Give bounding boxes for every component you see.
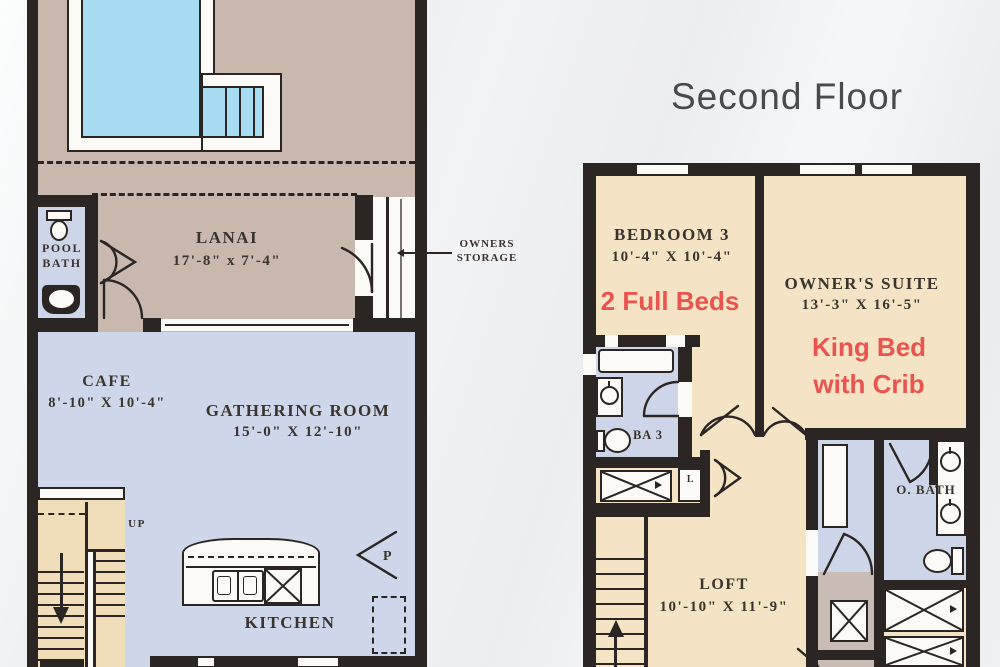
- sink-icon: [600, 386, 619, 405]
- stair-tread: [596, 663, 644, 665]
- owners-suite-door-arc: [761, 400, 809, 438]
- stair-tread: [96, 593, 125, 595]
- toilet-icon: [50, 220, 68, 241]
- closet-marker-icon: [655, 481, 662, 489]
- ba3-door-arc: [640, 378, 682, 420]
- sink-tick: [608, 381, 610, 388]
- page-title: Second Floor: [671, 76, 903, 118]
- closet-door-gap: [605, 335, 618, 347]
- wic-door-opening: [806, 530, 818, 576]
- room-label-cafe: CAFE: [82, 372, 132, 392]
- closet-doors: [822, 444, 848, 528]
- linen-label: L: [687, 474, 695, 487]
- stair-tread: [96, 582, 125, 584]
- pool-step-line: [225, 88, 227, 136]
- floor-plan-page: POOL BATH LANAI 17'-8" x 7'-4" OWNERS ST…: [0, 0, 1000, 667]
- sink-basin: [217, 576, 231, 595]
- stair-tread: [38, 637, 84, 639]
- room-label-gathering-room: GATHERING ROOM: [206, 400, 391, 421]
- sliding-door-line: [165, 324, 349, 326]
- tub-icon: [598, 349, 674, 373]
- storage-shelf-line: [400, 199, 402, 328]
- room-label-bedroom3: BEDROOM 3: [614, 224, 730, 245]
- wall-lanai-bottom-stub: [143, 318, 161, 332]
- counter-appliance: [198, 658, 214, 666]
- room-dims-owners-suite: 13'-3" X 16'-5": [802, 296, 923, 315]
- refrigerator-icon: [372, 596, 406, 654]
- toilet-icon: [923, 549, 952, 573]
- window-icon: [862, 163, 912, 176]
- wall-bedroom3-divider: [755, 176, 764, 437]
- closet-marker-icon: [950, 647, 957, 655]
- wall-lanai-bottom-right: [353, 318, 415, 332]
- stair-tread: [596, 648, 644, 650]
- room-label-lanai: LANAI: [196, 227, 258, 248]
- callout-arrow-icon: [397, 249, 404, 257]
- stair-stringer: [93, 551, 96, 667]
- pool-bath-line1: POOL: [42, 241, 82, 256]
- sink-tick: [949, 499, 951, 506]
- bedroom3-feature-label: 2 Full Beds: [601, 286, 740, 317]
- room-label-owners-suite: OWNER'S SUITE: [784, 273, 939, 294]
- pool-step-line: [253, 88, 255, 136]
- wall-hall-top: [805, 428, 966, 440]
- sink-divider: [237, 572, 239, 600]
- window-icon: [583, 352, 596, 377]
- wall-first-right: [415, 0, 427, 667]
- stair-up-arrow-icon: [608, 620, 624, 637]
- stair-tread: [96, 615, 125, 617]
- room-label-pool-bath: POOL BATH: [42, 241, 82, 271]
- callout-owners-storage: OWNERS STORAGE: [457, 238, 518, 266]
- laundry-bottom-wall: [818, 650, 876, 660]
- stair-tread: [96, 604, 125, 606]
- sink-tick: [949, 447, 951, 454]
- stair-down-arrow-icon: [53, 607, 69, 624]
- pool-step-line: [239, 88, 241, 136]
- wall-lanai-bottom-left: [38, 318, 98, 332]
- washer-icon: [830, 600, 868, 642]
- closet-marker-icon: [950, 605, 957, 613]
- stair-tread: [596, 573, 644, 575]
- stair-up-arrow-shaft: [614, 636, 617, 667]
- dishwasher-icon: [264, 568, 302, 604]
- window-icon: [637, 163, 688, 176]
- stair-landing-line: [85, 549, 125, 552]
- pool: [81, 0, 201, 138]
- wall-second-left: [583, 163, 596, 667]
- shower-door-arc: [886, 440, 936, 486]
- pool-bath-line2: BATH: [42, 256, 82, 271]
- closet-door-gap: [666, 335, 685, 347]
- stair-bottom-stub: [40, 661, 84, 667]
- wall-ba3-bottom: [596, 457, 703, 468]
- wall-loft-top: [583, 503, 710, 517]
- room-label-loft: LOFT: [699, 575, 749, 595]
- sink-icon: [940, 503, 961, 524]
- room-dims-lanai: 17'-8" x 7'-4": [173, 252, 281, 271]
- callout-line2: STORAGE: [457, 252, 518, 266]
- room-dims-gathering-room: 15'-0" X 12'-10": [233, 423, 363, 442]
- wall-linen-right: [700, 450, 710, 503]
- room-dims-cafe: 8'-10" X 10'-4": [48, 394, 166, 412]
- screen-enclosure-line: [38, 161, 415, 164]
- stair-tread: [596, 603, 644, 605]
- room-dims-loft: 10'-10" X 11'-9": [660, 598, 789, 617]
- stair-up-label: UP: [128, 518, 146, 532]
- sink-basin: [243, 576, 257, 595]
- kitchen-counter: [150, 656, 415, 667]
- room-dims-bedroom3: 10'-4" X 10'-4": [612, 248, 733, 267]
- sink-icon: [940, 451, 961, 472]
- stair-tread: [38, 648, 84, 650]
- wic-door-arc: [820, 528, 876, 578]
- sink-icon: [49, 290, 74, 308]
- storage-door-arc: [338, 240, 376, 296]
- window-icon: [800, 163, 855, 176]
- linen-door-arc: [712, 456, 744, 500]
- room-label-kitchen: KITCHEN: [245, 612, 336, 633]
- stair-down-arrow-shaft: [60, 553, 63, 609]
- lanai-door-arc: [100, 278, 144, 322]
- counter-appliance: [298, 658, 338, 666]
- owners-storage-closet: [373, 197, 415, 330]
- owners-bath-bottom-wall: [884, 580, 966, 588]
- stair-tread: [96, 560, 125, 562]
- wall-second-right: [966, 163, 980, 667]
- stair-edge-line: [644, 517, 648, 667]
- stair-tread: [96, 571, 125, 573]
- stair-tread: [596, 558, 644, 560]
- callout-line1: OWNERS: [457, 238, 518, 252]
- toilet-tank: [951, 547, 964, 575]
- owners-suite-feature-line1: King Bed: [812, 332, 926, 363]
- wall-first-left: [27, 0, 38, 667]
- pantry-label: P: [383, 548, 393, 566]
- owners-suite-feature-line2: with Crib: [813, 369, 924, 400]
- lanai-roof-line: [92, 193, 357, 196]
- stair-dashed-line: [38, 513, 85, 515]
- wall-pool-bath-right: [85, 195, 98, 318]
- bedroom3-door-arc: [698, 400, 758, 438]
- callout-leader-line: [404, 252, 452, 254]
- stair-tread: [596, 588, 644, 590]
- stair-tread: [38, 626, 84, 628]
- storage-divider: [386, 197, 389, 330]
- room-label-bath-3: BA 3: [633, 428, 663, 444]
- toilet-icon: [604, 428, 631, 453]
- island-dashed-line: [188, 556, 314, 558]
- stair-landing-edge: [38, 487, 125, 500]
